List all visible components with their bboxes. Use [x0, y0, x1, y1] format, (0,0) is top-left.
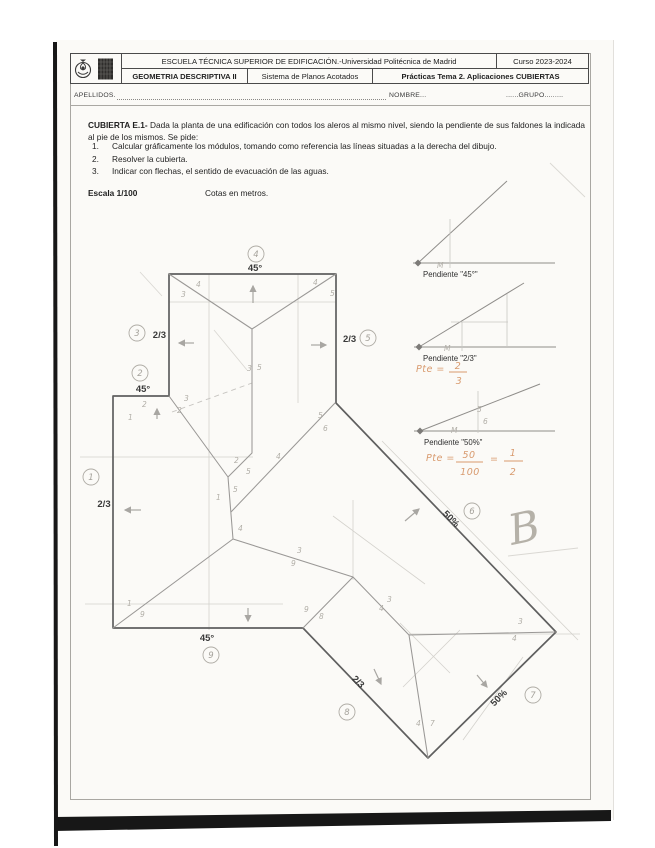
pendiente-23-label: Pendiente "2/3" — [423, 354, 477, 363]
module-number: 8 — [319, 612, 324, 621]
module-number: 5 — [330, 289, 335, 298]
circled-number: 6 — [469, 507, 475, 517]
module-number: 3 — [184, 394, 189, 403]
slope-label: 2/3 — [349, 674, 366, 691]
module-number: 6 — [323, 424, 328, 433]
pendiente-reference-diagrams: Pendiente "45°" Pendiente "2/3" Pendient… — [413, 181, 556, 447]
slope-label: 50% — [440, 509, 462, 531]
module-number: 7 — [430, 719, 435, 728]
slope-label: 45° — [248, 263, 263, 274]
module-number: 1 — [128, 413, 133, 422]
slope-label: 45° — [136, 384, 151, 395]
scan-edge-bottom — [54, 810, 611, 831]
pte-23-note: Pte = — [416, 364, 445, 375]
fraction-numerator: 2 — [455, 361, 462, 372]
module-number: 4 — [379, 604, 384, 613]
origin-marker — [415, 343, 422, 350]
slope-label: 2/3 — [153, 330, 166, 341]
circled-numbers: 123456789 — [83, 246, 541, 720]
module-number: 3 — [518, 617, 523, 626]
circled-number: 7 — [530, 691, 536, 701]
module-number: 5 — [257, 363, 262, 372]
pendiente-23-diagram — [414, 283, 556, 347]
module-number: 4 — [512, 634, 517, 643]
fraction-denominator: 3 — [456, 376, 463, 387]
circled-number: 1 — [88, 473, 93, 483]
module-number: 4 — [238, 524, 243, 533]
water-flow-arrows — [125, 286, 487, 687]
module-number: 3 — [387, 595, 392, 604]
slope-label: 2/3 — [97, 499, 110, 510]
circled-number: 9 — [208, 651, 213, 661]
pendiente-45-label: Pendiente "45°" — [423, 270, 478, 279]
fraction-denominator: 100 — [460, 467, 480, 478]
slope-label: 45° — [200, 633, 215, 644]
module-number: M — [451, 426, 458, 435]
module-number: 2 — [177, 406, 182, 415]
fraction-numerator: 50 — [462, 450, 475, 461]
module-number: 4 — [276, 452, 281, 461]
scanned-worksheet-page: ESCUELA TÉCNICA SUPERIOR DE EDIFICACIÓN.… — [0, 0, 655, 848]
module-number: 5 — [233, 485, 238, 494]
slope-label: 2/3 — [343, 334, 356, 345]
flow-arrow-upright — [405, 509, 419, 521]
roof-plan-drawing: Pendiente "45°" Pendiente "2/3" Pendient… — [0, 0, 655, 848]
flow-arrow-downright — [477, 675, 487, 687]
origin-marker — [416, 427, 423, 434]
scan-edge-left — [53, 42, 58, 846]
module-number: 9 — [291, 559, 296, 568]
fraction-denominator: 2 — [510, 467, 517, 478]
pte-50-note: Pte = — [426, 453, 455, 464]
module-number: 4 — [416, 719, 421, 728]
module-number: 2 — [234, 456, 239, 465]
module-number: 4 — [313, 278, 318, 287]
module-number: 2 — [142, 400, 147, 409]
module-number: M — [444, 344, 451, 353]
flow-arrow-down — [374, 669, 381, 684]
pendiente-45-diagram — [413, 181, 555, 263]
module-number: M — [437, 261, 444, 270]
handwritten-module-numbers: 34453512231425545639563434471998MMM — [127, 261, 523, 728]
module-number: 1 — [216, 493, 221, 502]
pencil-b-doodle: B — [503, 500, 544, 555]
module-number: 5 — [246, 467, 251, 476]
module-number: 9 — [304, 605, 309, 614]
fraction-numerator: 1 — [510, 448, 517, 459]
equals-sign: = — [490, 454, 498, 465]
pendiente-50-label: Pendiente "50%" — [424, 438, 483, 447]
circled-number: 4 — [253, 250, 258, 260]
module-number: 1 — [127, 599, 132, 608]
slope-label: 50% — [489, 687, 511, 709]
module-number: 3 — [297, 546, 302, 555]
circled-number: 8 — [344, 708, 350, 718]
module-number: 4 — [196, 280, 201, 289]
module-number: 3 — [181, 290, 186, 299]
circled-number: 3 — [134, 329, 139, 339]
circled-number: 5 — [365, 334, 370, 344]
module-number: 3 — [247, 364, 252, 373]
module-number: 9 — [140, 610, 145, 619]
module-number: 5 — [477, 405, 482, 414]
stray-pencil-marks — [140, 163, 585, 556]
module-number: 6 — [483, 417, 488, 426]
circled-number: 2 — [137, 369, 142, 379]
module-number: 5 — [318, 411, 323, 420]
